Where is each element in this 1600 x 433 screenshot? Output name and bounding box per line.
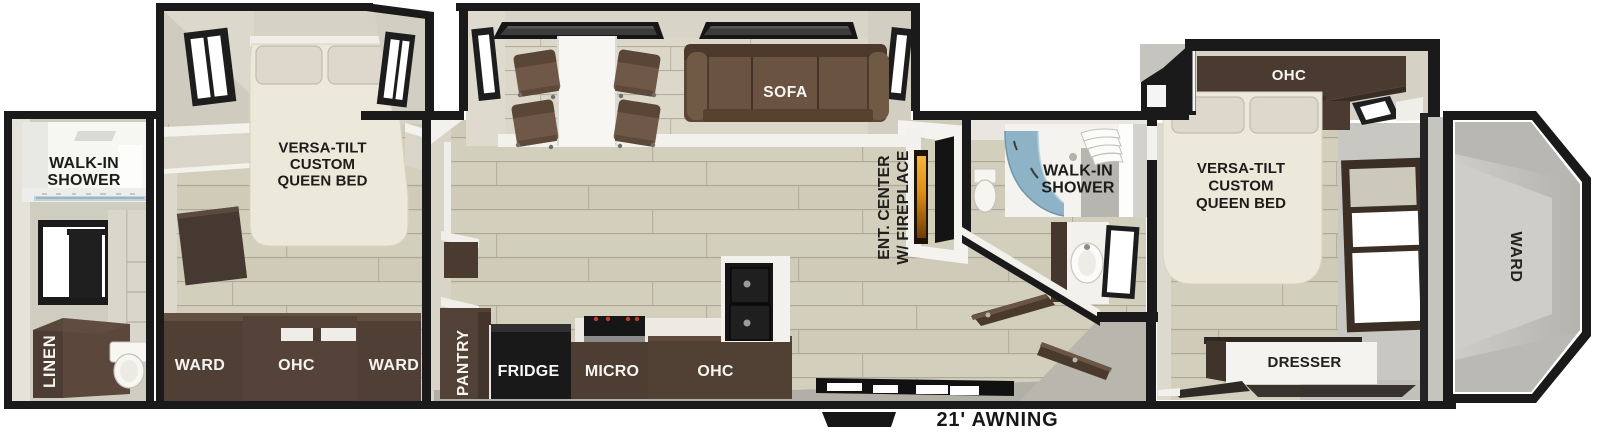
svg-text:SOFA: SOFA <box>763 84 808 101</box>
svg-text:LINEN: LINEN <box>41 335 59 389</box>
svg-text:PANTRY: PANTRY <box>455 329 472 396</box>
svg-text:CUSTOM: CUSTOM <box>290 156 355 173</box>
svg-text:OHC: OHC <box>278 357 315 374</box>
svg-text:WARD: WARD <box>1507 232 1524 283</box>
svg-text:OHC: OHC <box>1272 67 1307 84</box>
svg-text:CUSTOM: CUSTOM <box>1208 178 1273 195</box>
svg-text:21' AWNING: 21' AWNING <box>936 409 1058 431</box>
svg-text:WARD: WARD <box>369 357 419 374</box>
svg-text:WALK-IN: WALK-IN <box>49 155 119 172</box>
svg-text:FRIDGE: FRIDGE <box>498 363 560 380</box>
svg-text:VERSA-TILT: VERSA-TILT <box>278 140 366 157</box>
svg-text:WARD: WARD <box>175 357 225 374</box>
svg-text:ENT. CENTER: ENT. CENTER <box>876 155 893 259</box>
svg-text:QUEEN BED: QUEEN BED <box>277 173 367 190</box>
svg-text:WALK-IN: WALK-IN <box>1043 163 1113 180</box>
svg-text:QUEEN BED: QUEEN BED <box>1196 195 1286 212</box>
svg-text:SHOWER: SHOWER <box>1041 180 1114 197</box>
svg-text:DRESSER: DRESSER <box>1268 354 1342 371</box>
svg-text:W/ FIREPLACE: W/ FIREPLACE <box>895 150 912 264</box>
svg-text:MICRO: MICRO <box>585 363 639 380</box>
svg-text:VERSA-TILT: VERSA-TILT <box>1197 160 1285 177</box>
svg-text:SHOWER: SHOWER <box>47 172 120 189</box>
svg-text:OHC: OHC <box>697 363 733 380</box>
